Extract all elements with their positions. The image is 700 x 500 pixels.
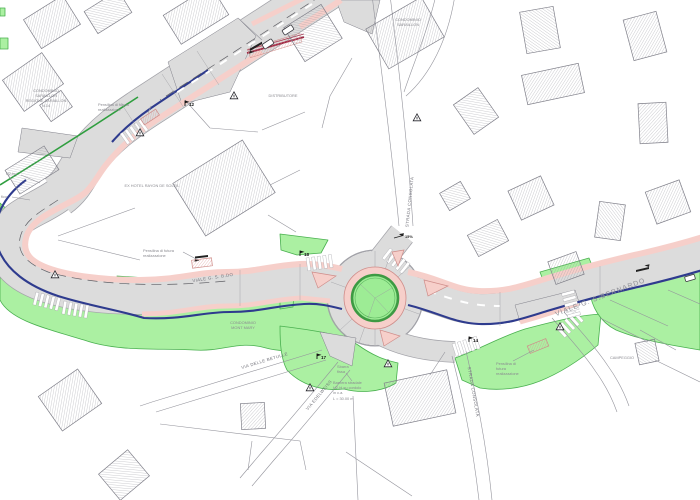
label-pensilina-top: realizzazione [98,107,121,112]
label-pensilina-right: realizzazione [496,371,519,376]
label-distributore: DISTRIBUTORE [269,93,298,98]
label-marker-12: 12 [189,102,195,107]
label-left-partial: fico [1,194,7,199]
label-marker-14: 14 [473,338,479,343]
label-condominio-mont-mary: MONT MARY [231,325,255,330]
building [595,201,626,240]
building [520,6,561,53]
label-guardrail-left: H2-bo [6,171,17,176]
label-marker-17: 17 [321,355,327,360]
building [240,402,265,429]
label-slope-15: 15% [405,234,413,239]
label-sbarra-fissa: fissa [337,369,346,374]
paper-background [0,0,700,500]
label-barriera: in c.a. [333,390,343,395]
building-campeggio [635,339,659,365]
building [638,102,668,143]
label-ex-hotel: EX HOTEL RAYON DE SOLEIL [125,183,181,188]
label-condominio-saraillon-top: SARAILLON [397,22,419,27]
label-campeggio: CAMPEGGIO [610,355,634,360]
label-pensilina-mid: realizzazione [143,253,166,258]
road-design-plan: CONDOMINIO SARAILLON REGIONE SARAILLON N… [0,0,700,500]
green-patch-left-2 [0,8,5,16]
green-patch-left-1 [0,38,8,49]
label-condominio-saraillon-left: N.14 [42,103,51,108]
label-marker-18: 18 [304,252,310,257]
label-barriera: L = 30.00 m [333,396,354,401]
